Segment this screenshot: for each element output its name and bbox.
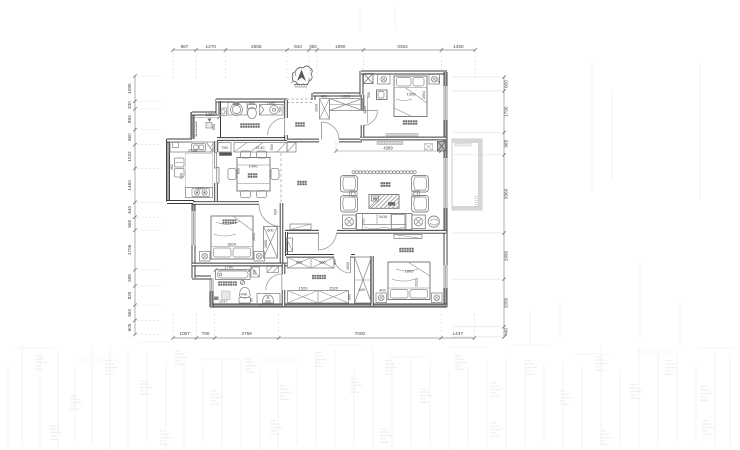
svg-text:1630: 1630 (346, 262, 350, 270)
svg-text:400: 400 (333, 259, 337, 265)
svg-text:400: 400 (321, 94, 328, 99)
svg-text:600: 600 (274, 209, 278, 215)
svg-text:600: 600 (504, 80, 509, 88)
svg-text:605: 605 (127, 323, 132, 331)
svg-text:965: 965 (504, 139, 509, 147)
svg-text:300: 300 (252, 270, 256, 276)
svg-text:1990: 1990 (504, 250, 509, 261)
svg-text:330: 330 (127, 101, 132, 109)
svg-text:2756: 2756 (241, 331, 252, 336)
svg-text:1030: 1030 (314, 104, 318, 112)
svg-text:1260: 1260 (205, 112, 215, 117)
svg-text:600: 600 (267, 228, 273, 232)
svg-text:893: 893 (127, 115, 132, 123)
svg-text:200: 200 (180, 173, 184, 179)
svg-text:1500: 1500 (407, 92, 417, 97)
svg-text:350: 350 (367, 92, 371, 98)
svg-text:1520: 1520 (329, 285, 339, 290)
svg-text:650: 650 (127, 133, 132, 141)
svg-text:3419: 3419 (379, 214, 388, 219)
svg-text:1706: 1706 (127, 244, 132, 255)
svg-text:2050: 2050 (504, 297, 509, 308)
svg-text:1437: 1437 (453, 331, 464, 336)
svg-text:987: 987 (181, 44, 189, 49)
svg-text:530: 530 (279, 107, 283, 113)
svg-text:2140: 2140 (256, 145, 266, 150)
svg-text:1005: 1005 (267, 100, 276, 105)
svg-text:1400: 1400 (249, 164, 259, 169)
svg-text:790: 790 (202, 331, 210, 336)
svg-text:1085: 1085 (127, 83, 132, 94)
svg-text:350: 350 (309, 44, 317, 49)
svg-text:1990: 1990 (335, 44, 346, 49)
svg-text:1007: 1007 (179, 331, 190, 336)
svg-text:3364: 3364 (397, 44, 408, 49)
svg-text:960: 960 (319, 259, 326, 264)
svg-text:1450: 1450 (453, 44, 464, 49)
svg-text:1017: 1017 (219, 298, 229, 303)
svg-text:640: 640 (127, 205, 132, 213)
svg-text:1790: 1790 (504, 106, 509, 117)
svg-text:600: 600 (359, 288, 365, 292)
svg-text:452: 452 (170, 164, 174, 170)
svg-text:1590: 1590 (342, 94, 351, 99)
svg-text:660: 660 (127, 308, 132, 316)
svg-text:560: 560 (127, 219, 132, 227)
svg-text:1520: 1520 (299, 285, 309, 290)
svg-text:2658: 2658 (251, 44, 262, 49)
svg-text:1022: 1022 (127, 151, 132, 162)
svg-text:960: 960 (296, 259, 303, 264)
svg-text:800: 800 (237, 168, 241, 174)
svg-text:440: 440 (249, 100, 256, 105)
svg-text:500: 500 (270, 144, 274, 150)
svg-text:2031: 2031 (414, 279, 418, 287)
svg-text:600: 600 (348, 294, 352, 300)
svg-text:440: 440 (504, 328, 509, 336)
svg-text:1800: 1800 (405, 269, 415, 274)
svg-text:2001: 2001 (422, 91, 426, 99)
svg-text:695: 695 (127, 274, 132, 282)
svg-text:1600: 1600 (264, 240, 268, 248)
svg-text:1800: 1800 (227, 241, 237, 246)
svg-text:1700: 1700 (225, 264, 235, 269)
svg-text:900: 900 (265, 300, 271, 304)
svg-text:677: 677 (198, 187, 204, 191)
svg-text:750: 750 (221, 145, 228, 150)
svg-text:943: 943 (294, 44, 302, 49)
svg-text:4389: 4389 (383, 146, 393, 151)
svg-text:550: 550 (212, 124, 216, 130)
svg-text:400: 400 (379, 287, 386, 292)
svg-text:540: 540 (233, 101, 240, 106)
svg-text:825: 825 (127, 291, 132, 299)
svg-text:7000: 7000 (355, 331, 366, 336)
svg-text:80: 80 (249, 298, 253, 302)
svg-text:2031: 2031 (252, 233, 256, 241)
svg-text:1460: 1460 (127, 180, 132, 191)
svg-text:1270: 1270 (206, 44, 217, 49)
svg-text:720: 720 (361, 219, 365, 225)
svg-text:1135: 1135 (363, 106, 367, 114)
svg-text:400: 400 (437, 77, 441, 83)
svg-text:1722: 1722 (188, 148, 198, 153)
svg-text:3360: 3360 (504, 188, 509, 199)
svg-text:440: 440 (241, 291, 248, 296)
